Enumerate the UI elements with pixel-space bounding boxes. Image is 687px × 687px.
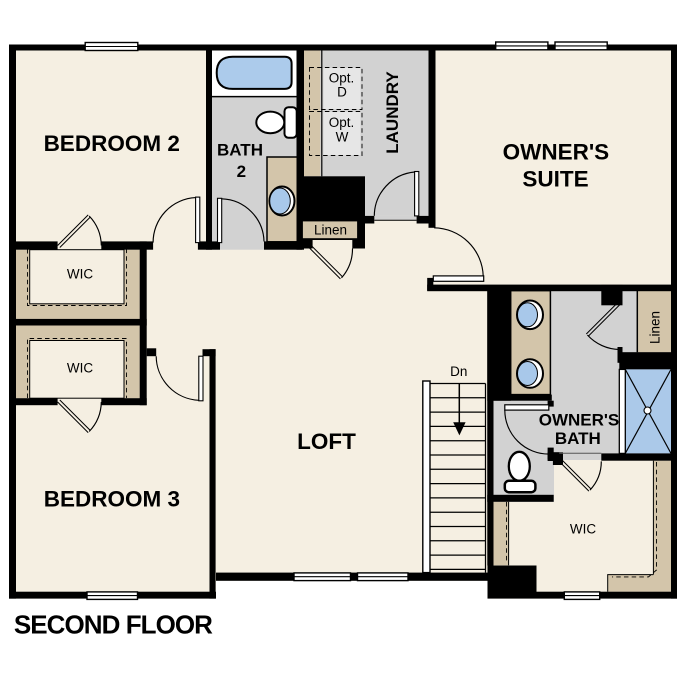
svg-text:WIC: WIC <box>67 361 93 376</box>
svg-text:SUITE: SUITE <box>522 167 588 192</box>
svg-text:BATH: BATH <box>217 141 263 160</box>
svg-text:OWNER'S: OWNER'S <box>503 140 610 165</box>
svg-text:W: W <box>336 130 349 145</box>
svg-text:SECOND FLOOR: SECOND FLOOR <box>14 610 213 640</box>
svg-text:WIC: WIC <box>570 522 596 537</box>
svg-text:Linen: Linen <box>314 223 347 238</box>
svg-text:D: D <box>337 85 347 100</box>
svg-text:LAUNDRY: LAUNDRY <box>383 71 402 154</box>
svg-text:LOFT: LOFT <box>297 429 356 454</box>
svg-text:Dn: Dn <box>450 364 467 379</box>
svg-text:WIC: WIC <box>67 267 93 282</box>
svg-text:2: 2 <box>237 162 246 181</box>
svg-text:BEDROOM 3: BEDROOM 3 <box>44 487 180 512</box>
svg-text:BATH: BATH <box>555 429 601 448</box>
svg-text:OWNER'S: OWNER'S <box>539 411 620 430</box>
svg-text:BEDROOM 2: BEDROOM 2 <box>44 131 180 156</box>
svg-text:Opt.: Opt. <box>329 71 355 86</box>
svg-text:Opt.: Opt. <box>329 115 355 130</box>
svg-text:Linen: Linen <box>648 311 663 344</box>
